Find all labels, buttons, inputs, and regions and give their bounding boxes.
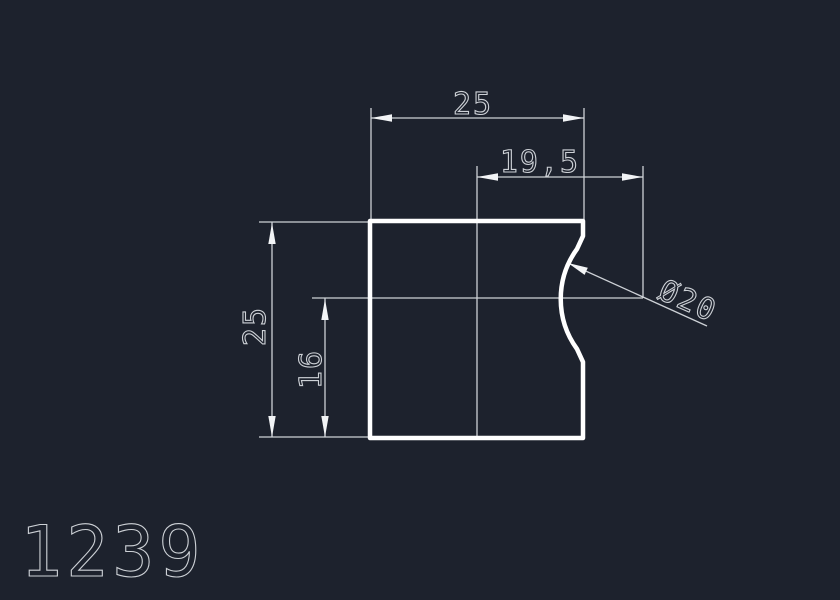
arrow-top-width-right <box>563 114 584 121</box>
arrow-left-height-top <box>268 223 275 244</box>
dimension-label-notch-center-height: 16 <box>294 349 329 389</box>
arrow-notch-offset-right <box>622 173 643 180</box>
dimension-labels: 25 19,5 25 16 Ø20 <box>238 87 722 389</box>
dimension-label-top-width: 25 <box>453 87 493 122</box>
arrow-top-width-left <box>371 114 392 121</box>
dimension-label-notch-offset: 19,5 <box>500 145 580 180</box>
arrow-left-height-bottom <box>268 416 275 437</box>
arrow-notch-height-top <box>321 299 328 320</box>
arrow-notch-height-bottom <box>321 416 328 437</box>
technical-drawing: 25 19,5 25 16 Ø20 1239 <box>0 0 840 600</box>
drawing-number: 1239 <box>20 511 205 593</box>
dimension-lines <box>272 118 707 437</box>
dimension-label-left-height: 25 <box>238 306 273 346</box>
cad-drawing-canvas: 25 19,5 25 16 Ø20 1239 <box>0 0 840 600</box>
dimension-label-notch-diameter: Ø20 <box>653 273 722 329</box>
arrow-diameter-leader <box>568 263 588 275</box>
arrow-notch-offset-left <box>477 173 498 180</box>
